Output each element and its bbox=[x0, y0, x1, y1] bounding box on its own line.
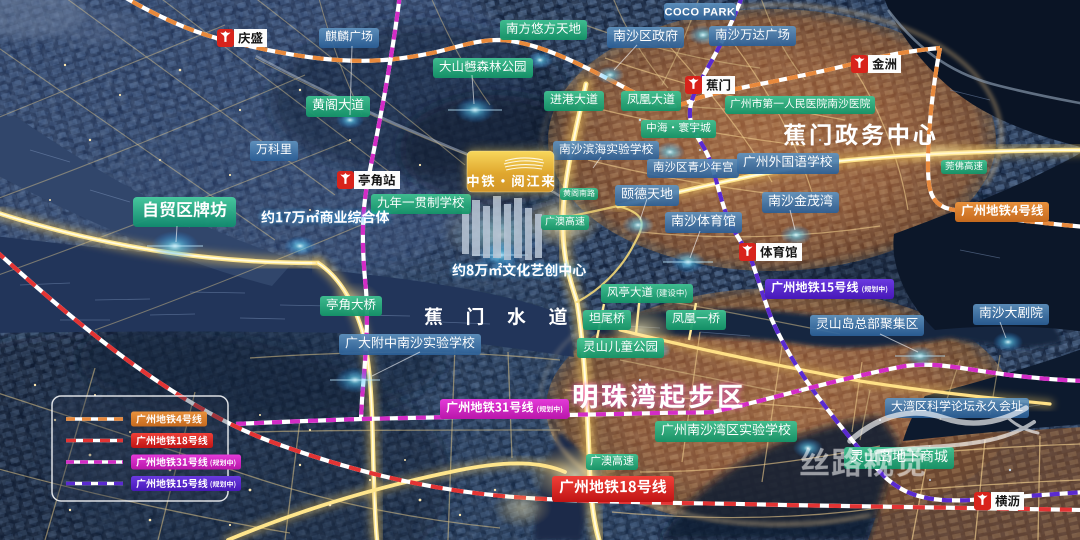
svg-text:COCO PARK: COCO PARK bbox=[665, 7, 736, 19]
